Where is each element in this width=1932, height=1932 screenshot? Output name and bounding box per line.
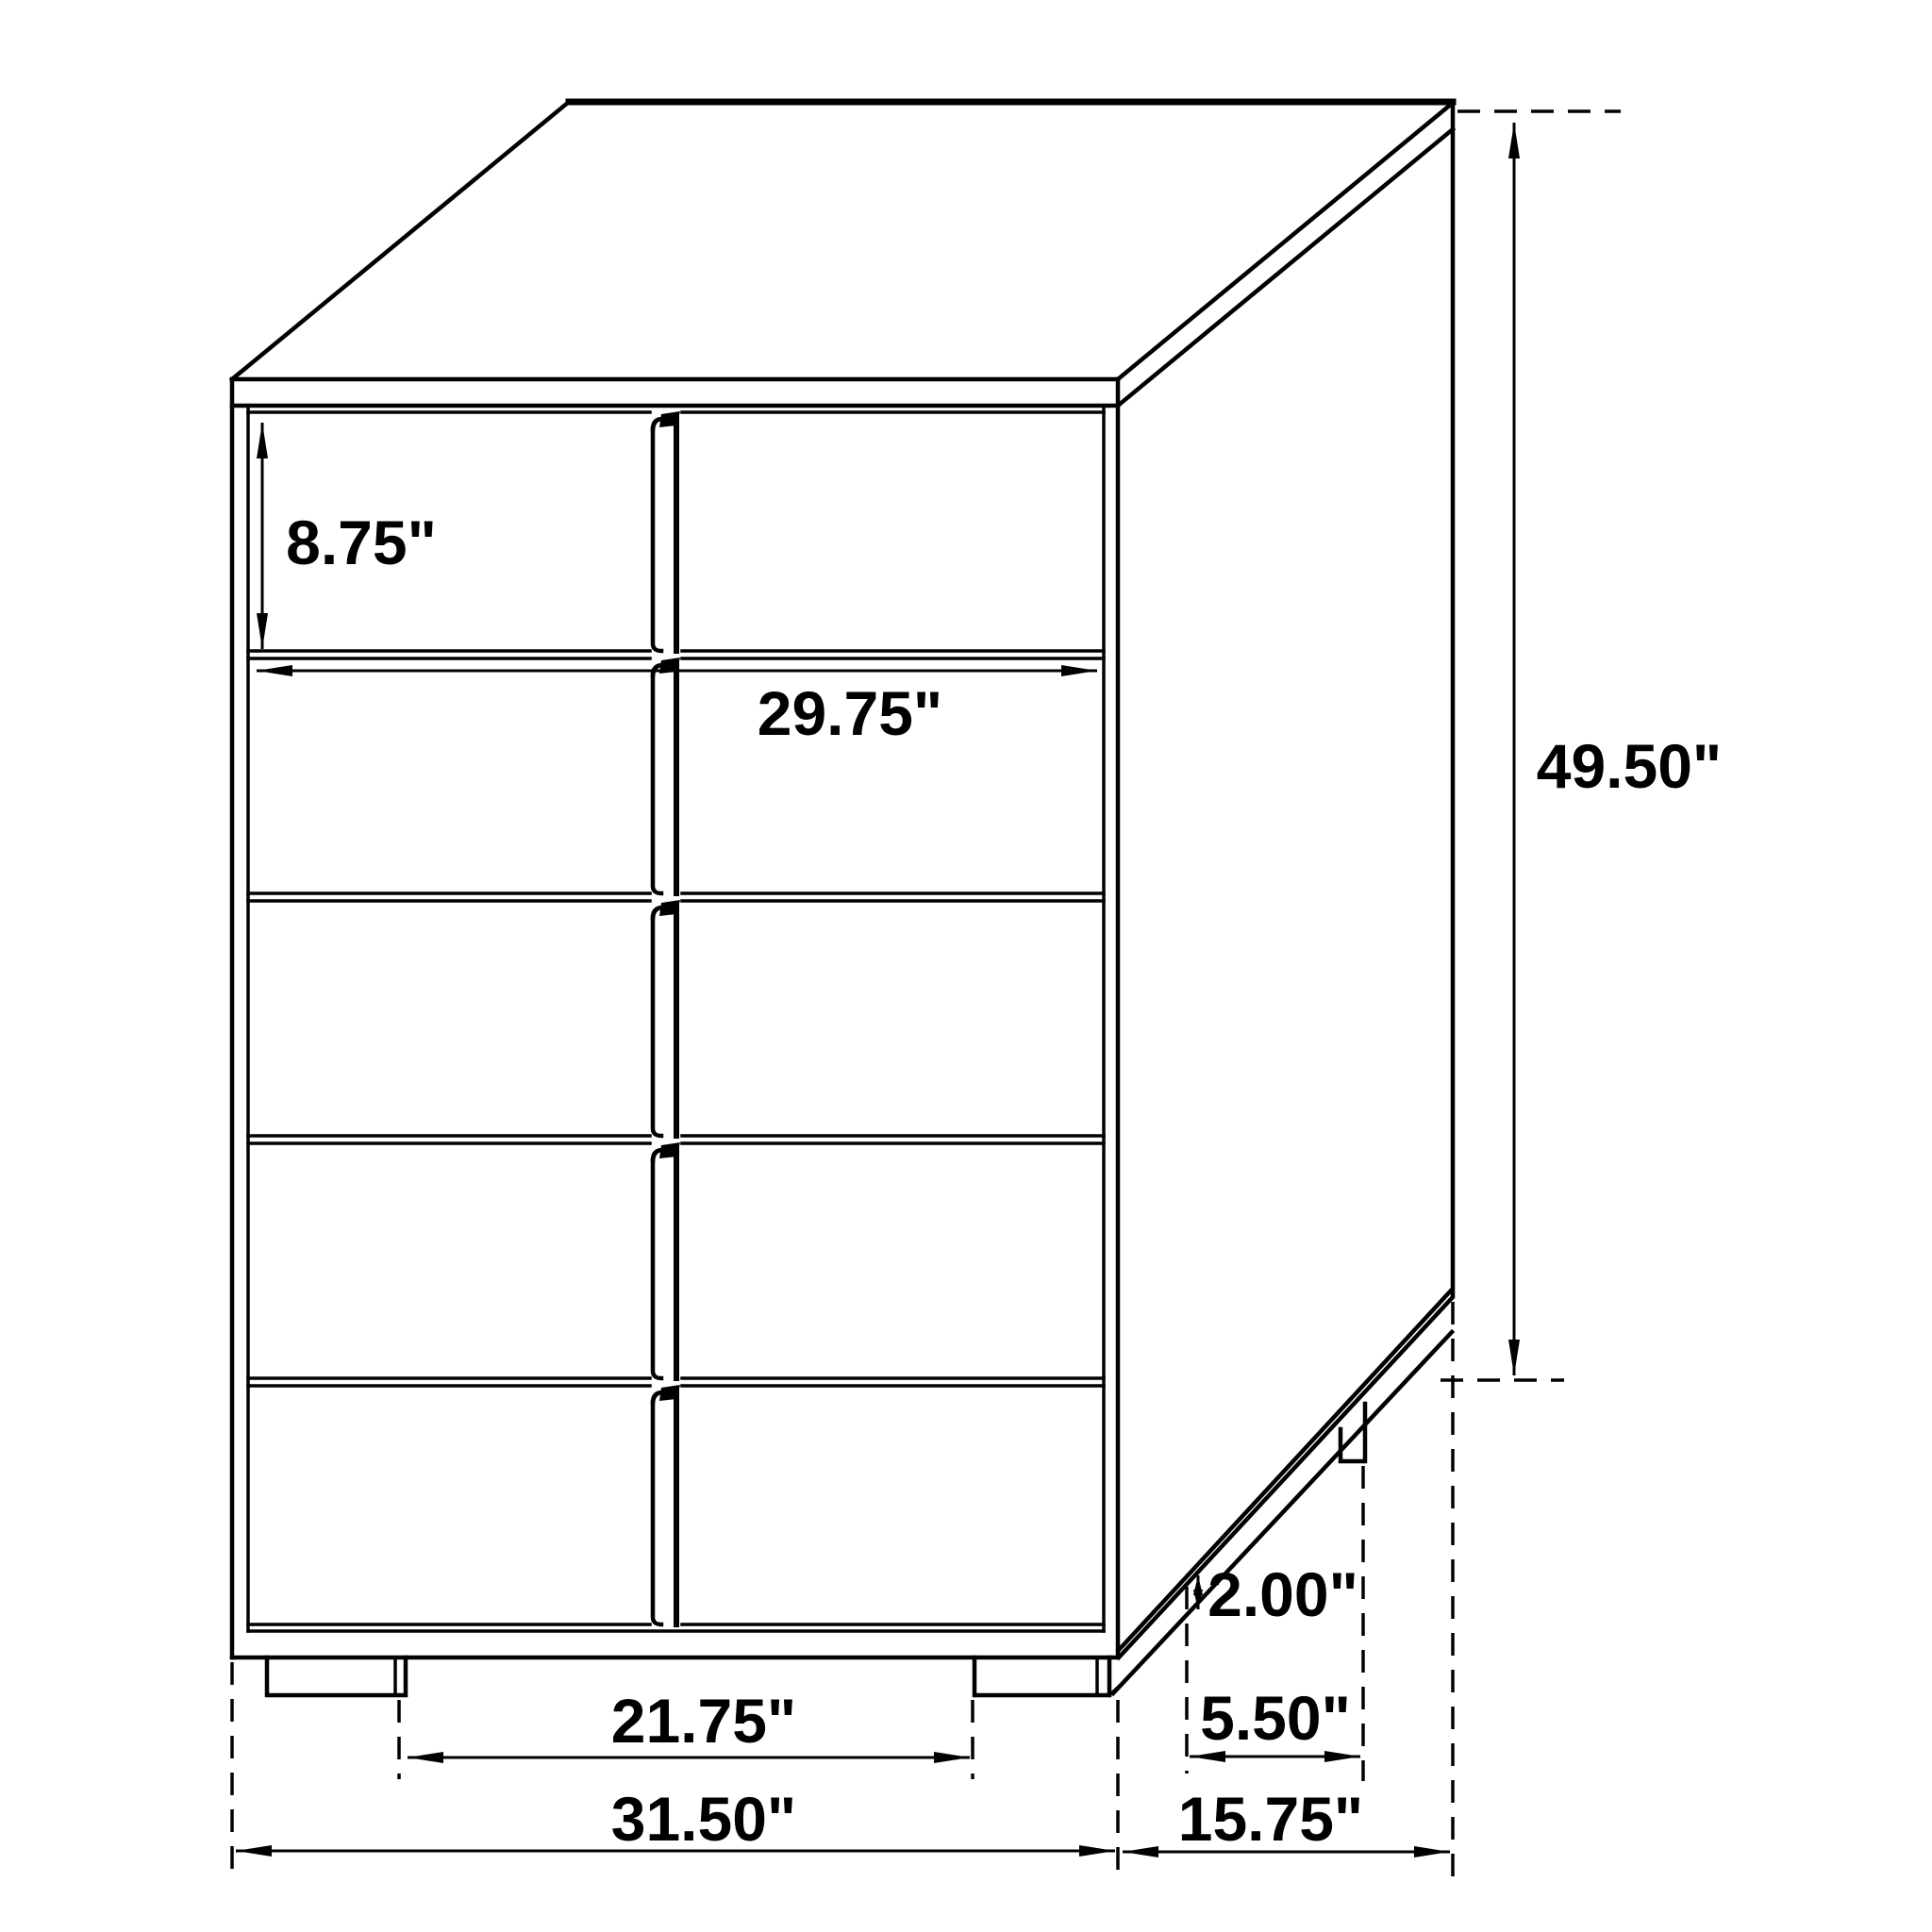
dimension-label-side-leg-inset: 5.50": [1200, 1683, 1351, 1753]
dimension-label-overall-depth: 15.75": [1178, 1784, 1363, 1854]
dimension-label-overall-width: 31.50": [611, 1784, 796, 1854]
dimension-label-leg-height: 2.00": [1207, 1559, 1358, 1629]
dimension-label-overall-height: 49.50": [1537, 731, 1722, 801]
furniture-dimension-diagram: 8.75" 29.75" 49.50" 2.00" 5.50" 21.75" 3…: [0, 0, 1932, 1932]
dimension-label-drawer-width: 29.75": [758, 678, 942, 748]
dimension-label-front-leg-spacing: 21.75": [611, 1686, 796, 1756]
dimension-label-drawer-front-height: 8.75": [286, 508, 437, 577]
canvas-background: [0, 0, 1932, 1932]
